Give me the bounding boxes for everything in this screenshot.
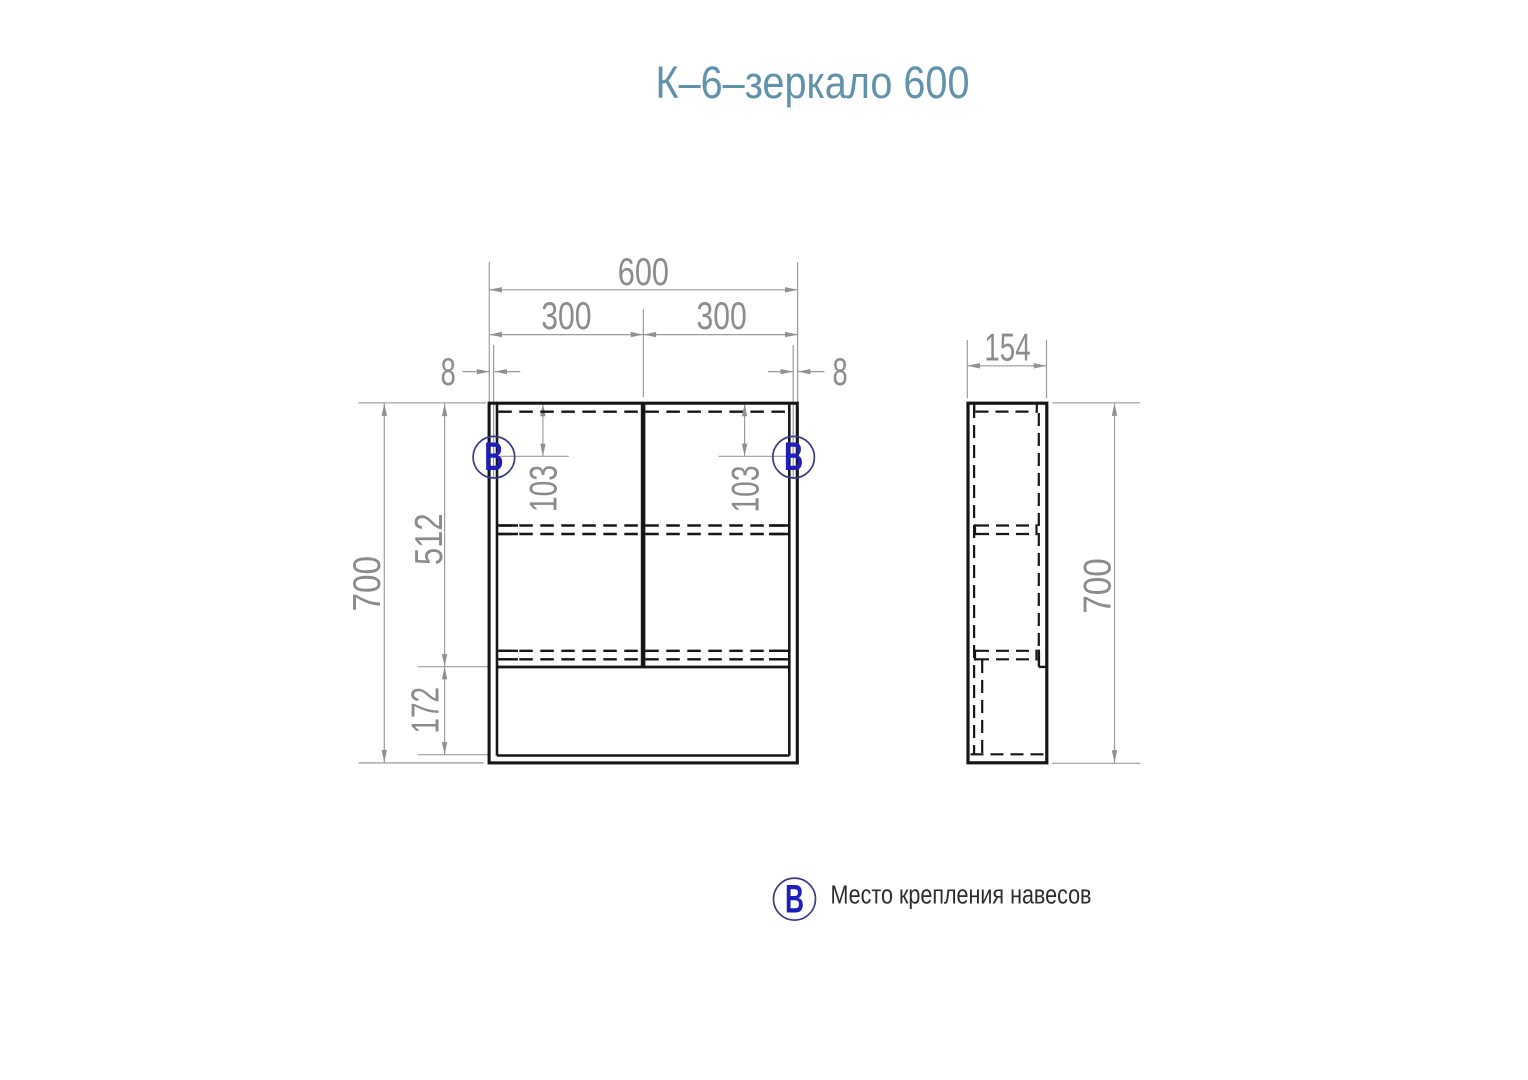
svg-text:300: 300 xyxy=(697,295,747,338)
svg-text:300: 300 xyxy=(541,295,591,338)
svg-text:103: 103 xyxy=(522,465,565,512)
svg-text:154: 154 xyxy=(984,327,1030,370)
svg-text:Место крепления навесов: Место крепления навесов xyxy=(831,881,1092,909)
svg-text:512: 512 xyxy=(408,513,451,565)
svg-text:172: 172 xyxy=(405,687,448,734)
svg-text:К–6–зеркало 600: К–6–зеркало 600 xyxy=(656,57,970,108)
svg-text:103: 103 xyxy=(724,466,767,513)
svg-text:B: B xyxy=(785,877,804,921)
svg-text:B: B xyxy=(784,435,803,479)
svg-text:700: 700 xyxy=(1077,558,1120,614)
svg-text:8: 8 xyxy=(441,351,456,394)
svg-text:B: B xyxy=(484,435,503,479)
svg-text:8: 8 xyxy=(832,351,847,394)
svg-text:700: 700 xyxy=(346,556,389,612)
svg-text:600: 600 xyxy=(618,251,669,294)
